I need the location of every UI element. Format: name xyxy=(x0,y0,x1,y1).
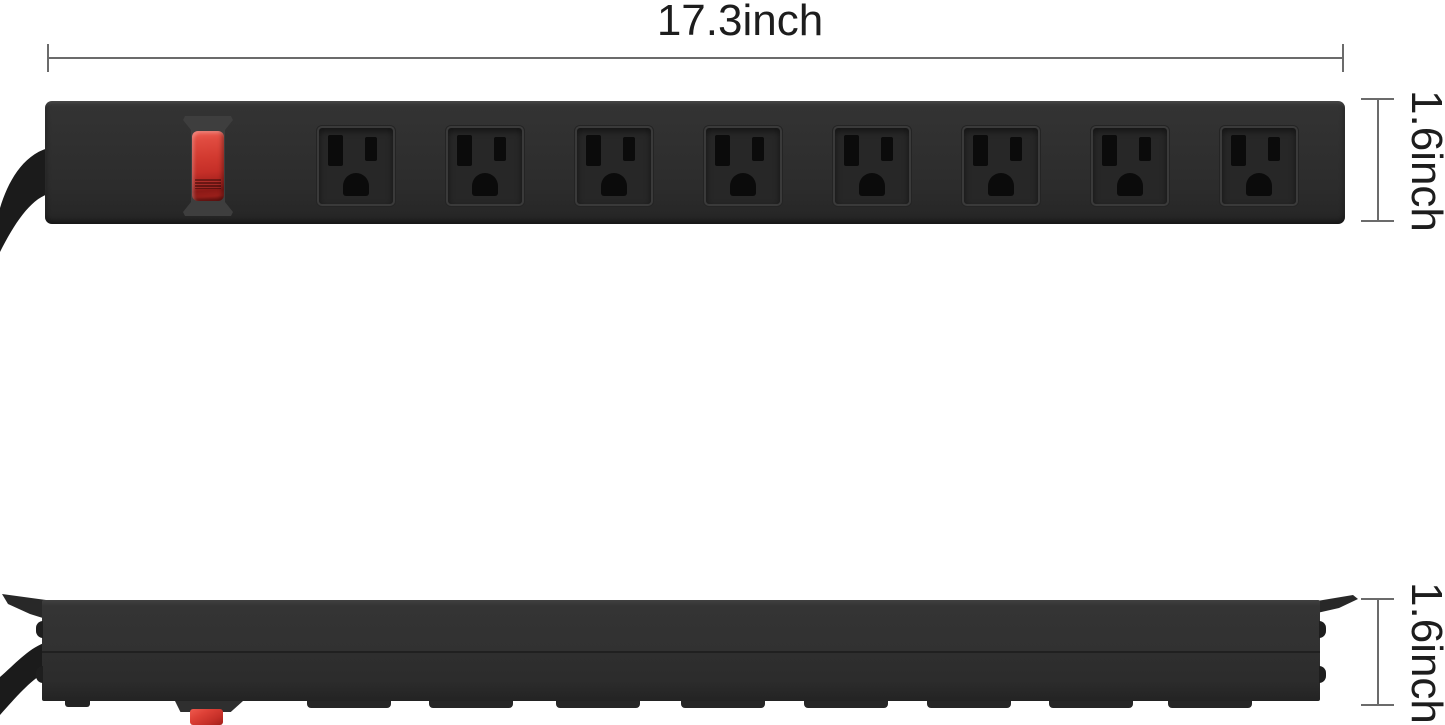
outlet-slot-neutral xyxy=(1231,135,1246,166)
outlet-ground-hole xyxy=(1117,173,1143,196)
side-foot xyxy=(65,701,90,707)
outlet xyxy=(1091,126,1169,206)
side-height-dimension-label: 1.6inch xyxy=(1356,582,1445,722)
outlet-ground-hole xyxy=(859,173,885,196)
outlet xyxy=(704,126,782,206)
power-switch-side-rocker xyxy=(190,709,223,725)
outlet-slot-neutral xyxy=(844,135,859,166)
outlet-tab-side xyxy=(307,701,391,708)
edge-screw xyxy=(36,666,43,683)
outlet-slot-hot xyxy=(881,137,893,161)
outlet-slot-hot xyxy=(1010,137,1022,161)
outlet-slot-hot xyxy=(1139,137,1151,161)
outlet-slot-neutral xyxy=(715,135,730,166)
outlet-tab-side xyxy=(804,701,888,708)
outlet-slot-hot xyxy=(365,137,377,161)
outlet-slot-neutral xyxy=(457,135,472,166)
edge-screw xyxy=(1319,666,1326,683)
outlet-slot-neutral xyxy=(1102,135,1117,166)
outlet-ground-hole xyxy=(601,173,627,196)
width-dimension-line xyxy=(48,57,1343,59)
outlet-ground-hole xyxy=(730,173,756,196)
product-dimension-diagram: 17.3inch 1.6inch 1.6i xyxy=(0,0,1445,725)
front-height-dimension-label: 1.6inch xyxy=(1356,90,1445,230)
power-switch-ridges xyxy=(195,179,221,189)
outlet-tab-side xyxy=(429,701,513,708)
outlet-ground-hole xyxy=(1246,173,1272,196)
outlet xyxy=(575,126,653,206)
outlet-tab-side xyxy=(556,701,640,708)
outlet-ground-hole xyxy=(472,173,498,196)
width-dimension-tick-left xyxy=(47,44,49,72)
power-strip-front-view xyxy=(45,101,1345,224)
edge-screw xyxy=(1319,621,1326,638)
outlet-slot-hot xyxy=(494,137,506,161)
outlet-tab-side xyxy=(1049,701,1133,708)
outlet-slot-neutral xyxy=(328,135,343,166)
outlet xyxy=(833,126,911,206)
width-dimension-tick-right xyxy=(1342,44,1344,72)
outlet-tab-side xyxy=(1168,701,1252,708)
power-strip-side-view xyxy=(42,600,1320,701)
mounting-ear-right xyxy=(1315,588,1360,618)
edge-screw xyxy=(36,621,43,638)
width-dimension-label: 17.3inch xyxy=(600,0,880,46)
outlet-slot-neutral xyxy=(586,135,601,166)
outlet-ground-hole xyxy=(343,173,369,196)
outlet xyxy=(317,126,395,206)
housing-seam-line xyxy=(42,651,1320,653)
power-cord-front xyxy=(0,130,48,260)
outlet-tab-side xyxy=(681,701,765,708)
outlet-slot-neutral xyxy=(973,135,988,166)
outlet xyxy=(446,126,524,206)
power-switch-rocker xyxy=(192,131,224,201)
outlet-slot-hot xyxy=(623,137,635,161)
outlet xyxy=(962,126,1040,206)
outlet-ground-hole xyxy=(988,173,1014,196)
outlet-slot-hot xyxy=(1268,137,1280,161)
outlet-slot-hot xyxy=(752,137,764,161)
outlet xyxy=(1220,126,1298,206)
outlet-tab-side xyxy=(927,701,1011,708)
